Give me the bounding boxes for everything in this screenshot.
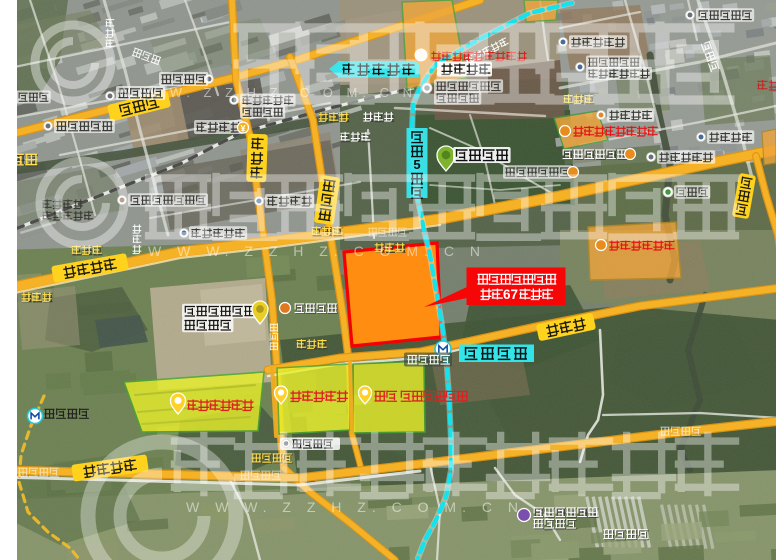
svg-text:W W W. Z Z H Z. C O M. C N: W W W. Z Z H Z. C O M. C N	[148, 243, 486, 259]
svg-text:W W W. Z Z H Z. C O M. C N: W W W. Z Z H Z. C O M. C N	[186, 499, 524, 515]
svg-text:5: 5	[413, 157, 420, 172]
svg-text:W W W. Z Z H Z. C O M. C N: W W W. Z Z H Z. C O M. C N	[118, 85, 417, 100]
svg-text:¥: ¥	[240, 124, 245, 134]
svg-text:67: 67	[503, 287, 518, 302]
